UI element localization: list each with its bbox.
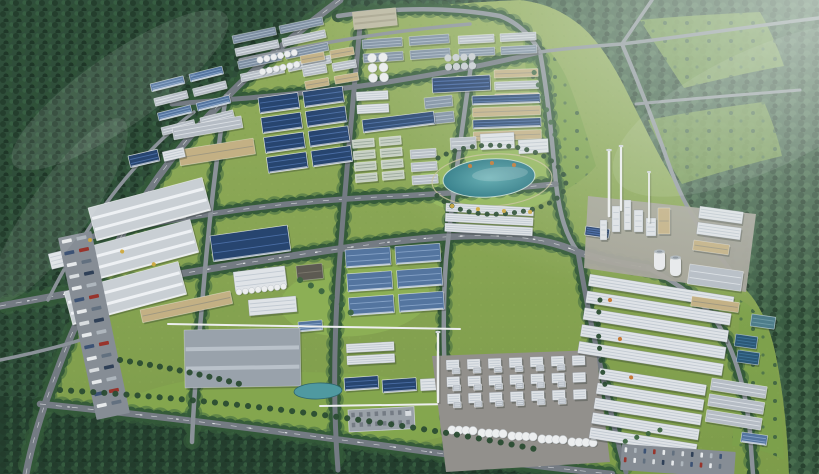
render-canvas xyxy=(0,0,819,474)
atmospheric-haze xyxy=(0,0,819,474)
aerial-render-industrial-park xyxy=(0,0,819,474)
